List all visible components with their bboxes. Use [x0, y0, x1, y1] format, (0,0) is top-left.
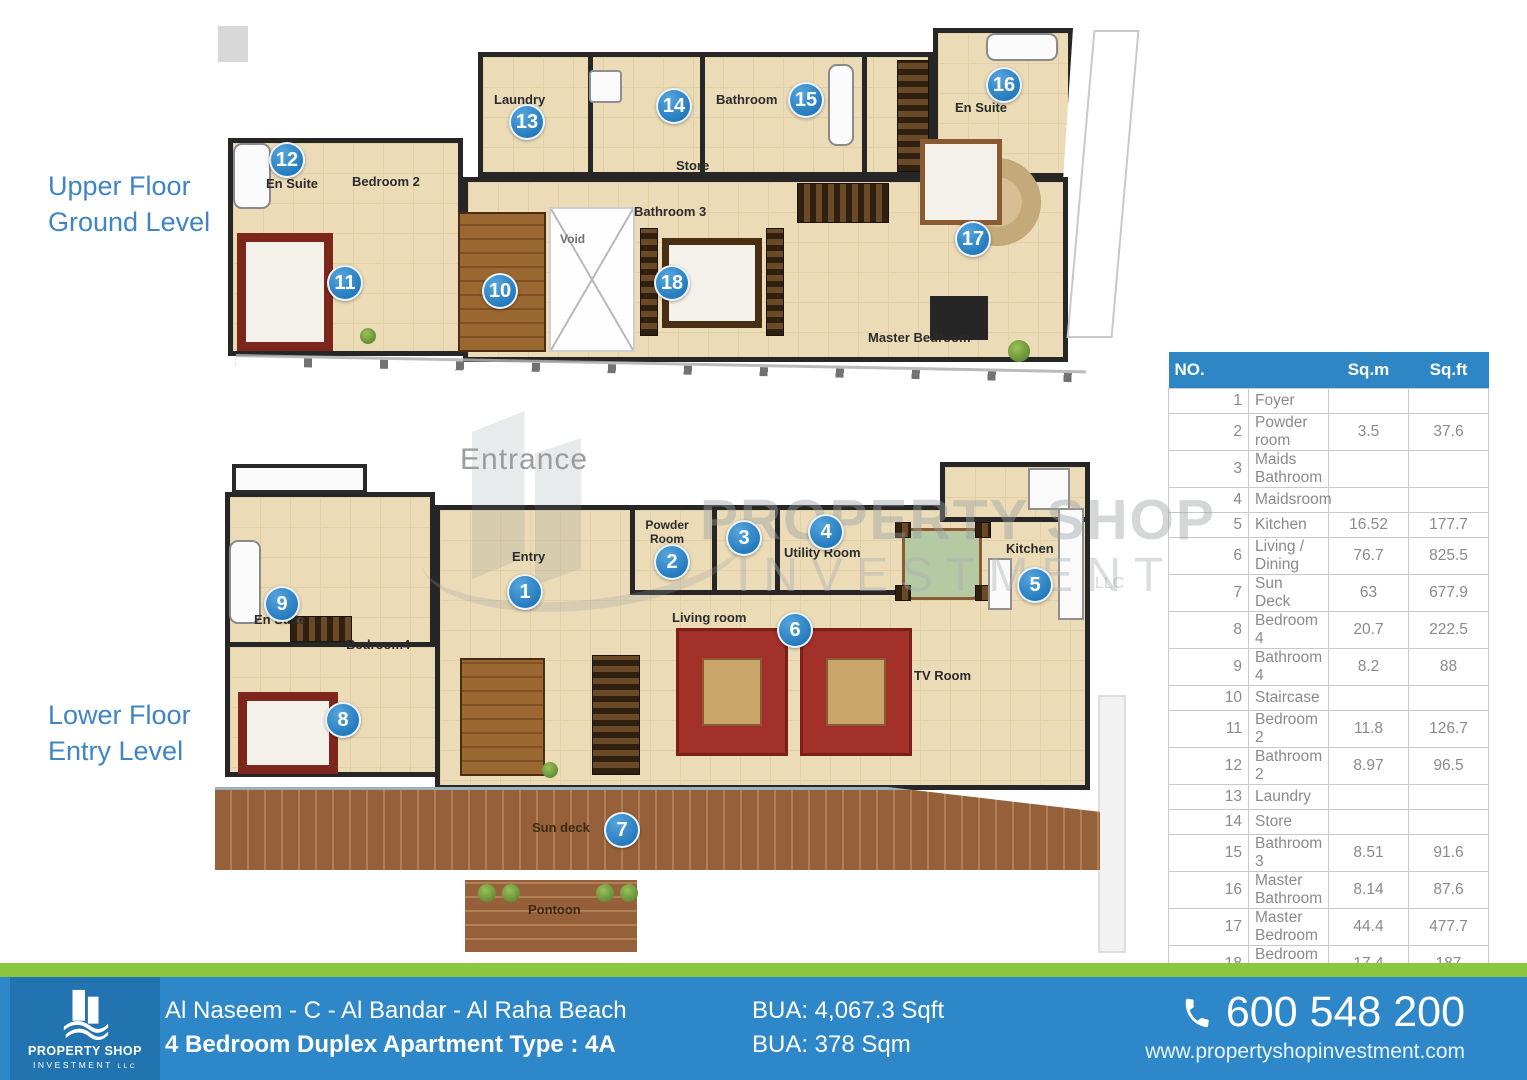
- table-cell: 8.14: [1329, 871, 1409, 908]
- room-label: TV Room: [914, 668, 971, 683]
- washer-laundry: [589, 70, 622, 103]
- bush: [478, 884, 496, 902]
- room-number-marker: 8: [325, 702, 361, 738]
- table-cell: 16.52: [1329, 512, 1409, 537]
- area-table: NO. Sq.m Sq.ft 1Foyer2Powder room3.537.6…: [1168, 352, 1489, 983]
- footer-bua-sqm: BUA: 378 Sqm: [752, 1031, 911, 1059]
- buildings-wave-icon: [56, 988, 114, 1040]
- table-cell: 44.4: [1329, 908, 1409, 945]
- plant: [360, 328, 376, 344]
- table-cell: [1409, 487, 1489, 512]
- room-number-marker: 17: [955, 221, 991, 257]
- table-cell: 11.8: [1329, 710, 1409, 747]
- bathtub-bathroom15: [828, 64, 854, 146]
- table-cell: 12: [1169, 747, 1249, 784]
- table-row: 9Bathroom 48.288: [1169, 648, 1489, 685]
- room-label: Void: [560, 232, 585, 246]
- gray-block: [218, 26, 248, 62]
- table-cell: 17: [1169, 908, 1249, 945]
- room-number-marker: 10: [482, 273, 518, 309]
- table-cell: 91.6: [1409, 834, 1489, 871]
- table-cell: [1409, 388, 1489, 413]
- living-sofa-set: [676, 628, 788, 756]
- table-cell: Maids Bathroom: [1249, 450, 1329, 487]
- footer-project-title: Al Naseem - C - Al Bandar - Al Raha Beac…: [165, 997, 627, 1025]
- room-label: Powder Room: [630, 519, 704, 547]
- void-area: [549, 207, 635, 352]
- room-label: Entry: [512, 549, 545, 564]
- watermark-line1: PROPERTY SHOP: [700, 487, 1216, 553]
- footer-green-stripe: [0, 963, 1527, 977]
- staircase-lower: [460, 658, 545, 776]
- table-cell: [1329, 487, 1409, 512]
- table-cell: [1329, 784, 1409, 809]
- table-cell: Master Bedroom: [1249, 908, 1329, 945]
- table-cell: 177.7: [1409, 512, 1489, 537]
- table-row: 12Bathroom 28.9796.5: [1169, 747, 1489, 784]
- page: Upper Floor Ground Level E: [0, 0, 1527, 1080]
- area-table-header: NO. Sq.m Sq.ft: [1169, 352, 1489, 388]
- coffee-table: [702, 658, 761, 726]
- table-cell: [1409, 784, 1489, 809]
- table-row: 1Foyer: [1169, 388, 1489, 413]
- table-cell: 76.7: [1329, 537, 1409, 574]
- table-cell: 87.6: [1409, 871, 1489, 908]
- balcony-outline: [1067, 30, 1140, 338]
- table-cell: 222.5: [1409, 611, 1489, 648]
- table-cell: Staircase: [1249, 685, 1329, 710]
- table-cell: Bathroom 2: [1249, 747, 1329, 784]
- room-number-marker: 1: [507, 574, 543, 610]
- table-cell: 96.5: [1409, 747, 1489, 784]
- room-number-marker: 15: [788, 82, 824, 118]
- table-cell: Kitchen: [1249, 512, 1329, 537]
- room-label: Kitchen: [1006, 541, 1054, 556]
- room-label: Bathroom 3: [634, 204, 706, 219]
- logo-line1: PROPERTY SHOP: [28, 1044, 142, 1058]
- closet: [766, 228, 784, 336]
- table-cell: Powder room: [1249, 413, 1329, 450]
- table-cell: Laundry: [1249, 784, 1329, 809]
- table-row: 11Bedroom 211.8126.7: [1169, 710, 1489, 747]
- table-cell: 11: [1169, 710, 1249, 747]
- wardrobe-bedroom4: [592, 655, 640, 775]
- table-cell: Sun Deck: [1249, 574, 1329, 611]
- table-cell: [1329, 685, 1409, 710]
- table-cell: Bathroom 3: [1249, 834, 1329, 871]
- table-cell: Bedroom 4: [1249, 611, 1329, 648]
- room-number-marker: 14: [656, 88, 692, 124]
- room-number-marker: 4: [808, 514, 844, 550]
- master-closet: [797, 183, 889, 223]
- table-cell: 37.6: [1409, 413, 1489, 450]
- col-header-sqft: Sq.ft: [1409, 352, 1489, 388]
- table-cell: 7: [1169, 574, 1249, 611]
- table-row: 15Bathroom 38.5191.6: [1169, 834, 1489, 871]
- table-row: 16Master Bathroom8.1487.6: [1169, 871, 1489, 908]
- table-cell: Bathroom 4: [1249, 648, 1329, 685]
- bed-room11: [237, 233, 333, 351]
- plant: [1008, 340, 1030, 362]
- table-cell: 88: [1409, 648, 1489, 685]
- property-shop-logo: PROPERTY SHOP INVESTMENT LLC: [10, 977, 160, 1080]
- table-cell: 126.7: [1409, 710, 1489, 747]
- room-number-marker: 11: [327, 265, 363, 301]
- side-walkway: [1098, 695, 1126, 953]
- table-cell: 3: [1169, 450, 1249, 487]
- room-number-marker: 13: [509, 104, 545, 140]
- room-label: Store: [676, 158, 709, 173]
- table-cell: 2: [1169, 413, 1249, 450]
- table-cell: Master Bathroom: [1249, 871, 1329, 908]
- room-number-marker: 9: [264, 586, 300, 622]
- footer-apartment-type: 4 Bedroom Duplex Apartment Type : 4A: [165, 1031, 616, 1059]
- table-cell: [1329, 388, 1409, 413]
- upper-floor-line1: Upper Floor: [48, 168, 210, 204]
- table-cell: 13: [1169, 784, 1249, 809]
- table-cell: 677.9: [1409, 574, 1489, 611]
- table-row: 8Bedroom 420.7222.5: [1169, 611, 1489, 648]
- table-cell: 15: [1169, 834, 1249, 871]
- wall: [700, 57, 705, 172]
- room-number-marker: 12: [269, 142, 305, 178]
- bed-room8: [238, 692, 338, 774]
- room-number-marker: 16: [986, 67, 1022, 103]
- room-label: Sun deck: [532, 820, 590, 835]
- col-header-no: NO.: [1169, 352, 1329, 388]
- table-row: 17Master Bedroom44.4477.7: [1169, 908, 1489, 945]
- table-cell: 16: [1169, 871, 1249, 908]
- room-label: Bedroom 2: [352, 174, 420, 189]
- lower-floor-line1: Lower Floor: [48, 697, 191, 733]
- room-label: Master Bedroom: [868, 330, 971, 345]
- room-label: Bathroom: [716, 92, 777, 107]
- bathtub-ensuite16: [986, 33, 1058, 61]
- table-row: 14Store: [1169, 809, 1489, 834]
- bush: [620, 884, 638, 902]
- table-row: 3Maids Bathroom: [1169, 450, 1489, 487]
- table-cell: 8.2: [1329, 648, 1409, 685]
- sun-deck: [215, 787, 1100, 870]
- room-label: Living room: [672, 610, 746, 625]
- coffee-table: [826, 658, 885, 726]
- entrance-label: Entrance: [460, 443, 588, 477]
- table-cell: 10: [1169, 685, 1249, 710]
- room-label: Pontoon: [528, 902, 581, 917]
- table-cell: 8.51: [1329, 834, 1409, 871]
- table-cell: 3.5: [1329, 413, 1409, 450]
- tv-sofa-set: [800, 628, 912, 756]
- room-number-marker: 18: [654, 265, 690, 301]
- room-number-marker: 5: [1017, 567, 1053, 603]
- table-row: 4Maidsroom: [1169, 487, 1489, 512]
- table-cell: 1: [1169, 388, 1249, 413]
- table-cell: [1409, 809, 1489, 834]
- table-cell: 8.97: [1329, 747, 1409, 784]
- table-row: 10Staircase: [1169, 685, 1489, 710]
- table-cell: Maidsroom: [1249, 487, 1329, 512]
- table-cell: 8: [1169, 611, 1249, 648]
- watermark-llc: LLC: [1095, 575, 1124, 593]
- shower-box: [232, 464, 367, 494]
- table-row: 5Kitchen16.52177.7: [1169, 512, 1489, 537]
- bush: [596, 884, 614, 902]
- phone-icon: [1180, 996, 1214, 1030]
- table-cell: 14: [1169, 809, 1249, 834]
- lower-floor-label: Lower Floor Entry Level: [48, 697, 191, 770]
- table-cell: Store: [1249, 809, 1329, 834]
- room-number-marker: 7: [604, 812, 640, 848]
- table-row: 13Laundry: [1169, 784, 1489, 809]
- table-cell: 477.7: [1409, 908, 1489, 945]
- table-row: 2Powder room3.537.6: [1169, 413, 1489, 450]
- table-cell: 20.7: [1329, 611, 1409, 648]
- upper-floor-label: Upper Floor Ground Level: [48, 168, 210, 241]
- table-cell: Bedroom 2: [1249, 710, 1329, 747]
- area-table-body: 1Foyer2Powder room3.537.63Maids Bathroom…: [1169, 388, 1489, 982]
- table-cell: Foyer: [1249, 388, 1329, 413]
- plant: [542, 762, 558, 778]
- room-label: En Suite: [266, 176, 318, 191]
- master-bed: [920, 139, 1002, 225]
- room-number-marker: 6: [777, 612, 813, 648]
- table-cell: [1329, 450, 1409, 487]
- table-row: 7Sun Deck63677.9: [1169, 574, 1489, 611]
- table-row: 6Living / Dining76.7825.5: [1169, 537, 1489, 574]
- table-cell: [1329, 809, 1409, 834]
- logo-line2: INVESTMENT LLC: [33, 1060, 137, 1070]
- room-number-marker: 3: [726, 520, 762, 556]
- table-cell: [1409, 685, 1489, 710]
- table-cell: 63: [1329, 574, 1409, 611]
- room-label: Bedroom4: [346, 637, 410, 652]
- table-cell: [1409, 450, 1489, 487]
- room-number-marker: 2: [654, 544, 690, 580]
- table-cell: 9: [1169, 648, 1249, 685]
- table-cell: Living / Dining: [1249, 537, 1329, 574]
- footer-website: www.propertyshopinvestment.com: [1145, 1040, 1465, 1064]
- table-cell: 825.5: [1409, 537, 1489, 574]
- wall: [862, 57, 867, 172]
- footer-bua-sqft: BUA: 4,067.3 Sqft: [752, 997, 944, 1025]
- bush: [502, 884, 520, 902]
- phone-number: 600 548 200: [1226, 988, 1465, 1037]
- col-header-sqm: Sq.m: [1329, 352, 1409, 388]
- lower-floor-line2: Entry Level: [48, 733, 191, 769]
- footer-phone: 600 548 200: [1180, 988, 1465, 1037]
- upper-floor-line2: Ground Level: [48, 204, 210, 240]
